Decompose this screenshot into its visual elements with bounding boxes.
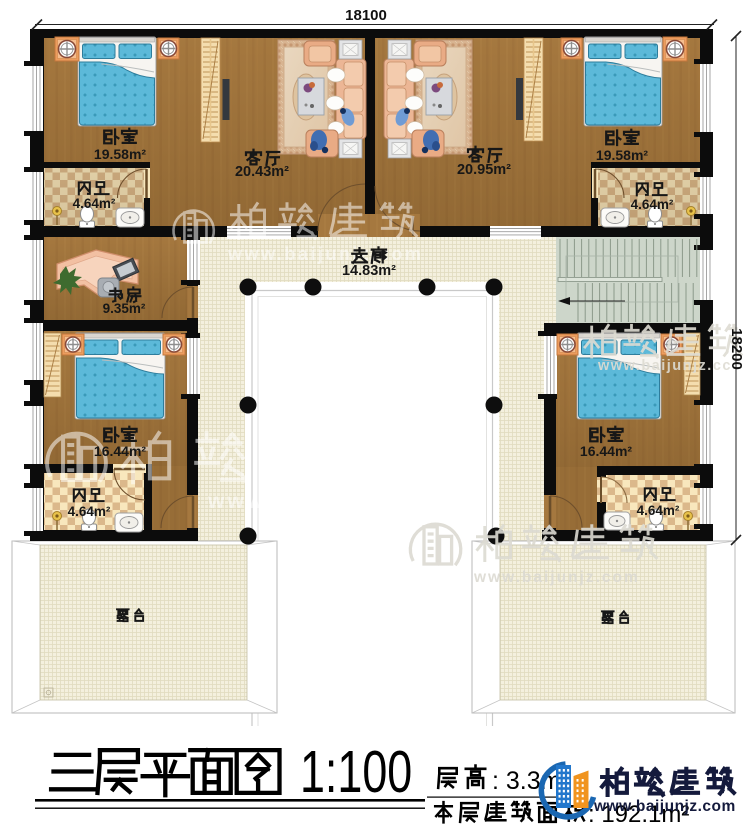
svg-text:16.44m²: 16.44m² <box>94 443 146 459</box>
svg-text:18200: 18200 <box>728 328 745 370</box>
svg-text:20.95m²: 20.95m² <box>457 162 511 178</box>
svg-text:4.64m²: 4.64m² <box>631 197 674 212</box>
svg-text:18100: 18100 <box>345 7 387 24</box>
svg-text:www.baijunjz.com: www.baijunjz.com <box>473 569 640 586</box>
svg-text:4.64m²: 4.64m² <box>68 504 111 519</box>
svg-text:www.baijunjz.com: www.baijunjz.com <box>593 798 736 815</box>
svg-text:4.64m²: 4.64m² <box>637 503 680 518</box>
svg-text:20.43m²: 20.43m² <box>235 164 289 180</box>
svg-text:www.baijunjz.cc: www.baijunjz.cc <box>597 358 732 374</box>
svg-text:www.baijunjz.com: www.baijunjz.com <box>207 490 437 513</box>
svg-text:16.44m²: 16.44m² <box>580 443 632 459</box>
svg-text:4.64m²: 4.64m² <box>73 196 116 211</box>
svg-text:9.35m²: 9.35m² <box>103 301 146 316</box>
svg-text:www.baijunjz.com: www.baijunjz.com <box>227 244 423 264</box>
svg-text:14.83m²: 14.83m² <box>342 263 396 279</box>
svg-text:19.58m²: 19.58m² <box>596 147 648 163</box>
svg-text:19.58m²: 19.58m² <box>94 146 146 162</box>
svg-text:1:100: 1:100 <box>300 740 412 805</box>
